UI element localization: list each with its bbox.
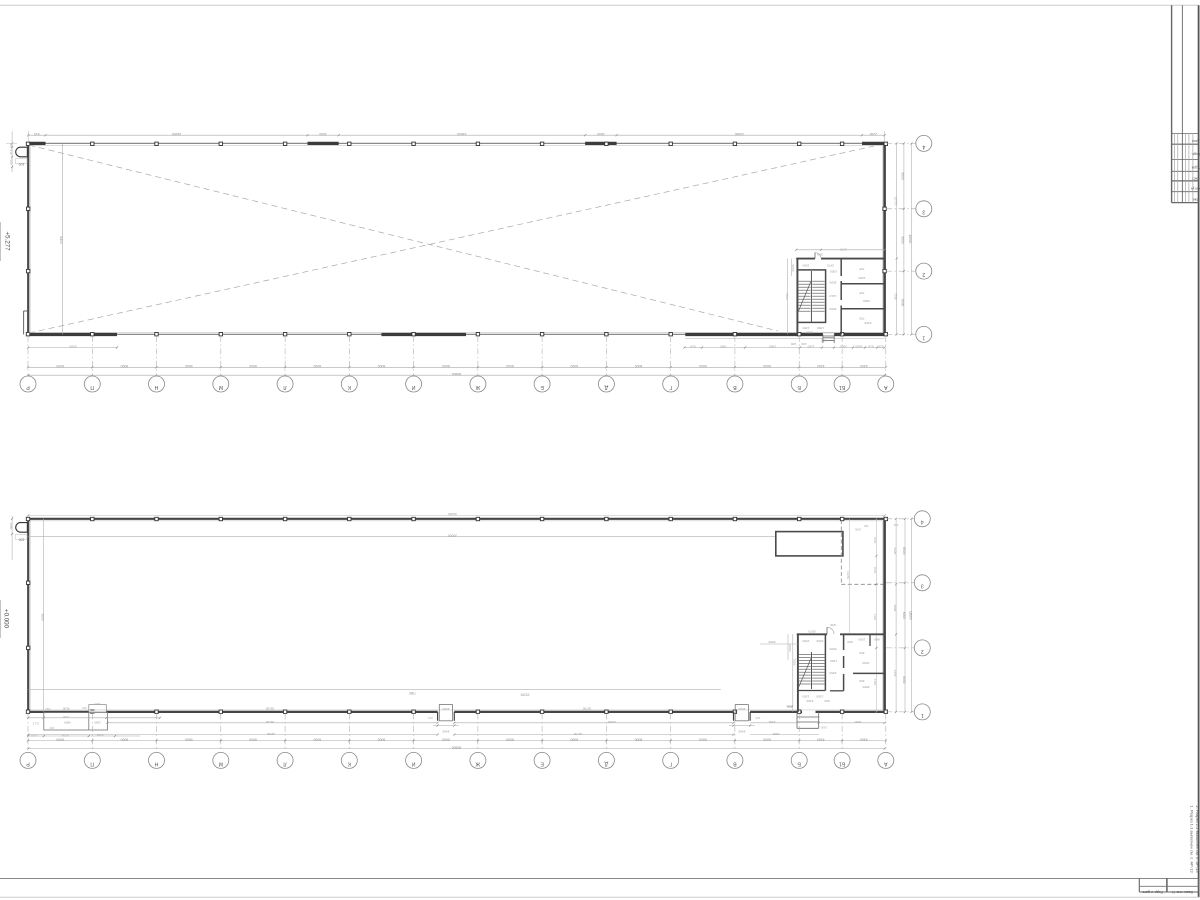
svg-text:В: В — [733, 760, 737, 766]
svg-text:1150: 1150 — [807, 345, 814, 349]
svg-text:100: 100 — [755, 716, 760, 720]
svg-text:3050: 3050 — [862, 685, 869, 689]
svg-text:8570: 8570 — [808, 630, 815, 634]
svg-text:Г: Г — [669, 760, 672, 766]
svg-text:Д: Д — [604, 760, 608, 766]
svg-text:П: П — [90, 384, 94, 390]
svg-text:7270: 7270 — [893, 670, 897, 677]
svg-text:2500: 2500 — [788, 645, 792, 652]
svg-text:Дата: Дата — [1192, 139, 1200, 143]
svg-text:830: 830 — [893, 523, 898, 527]
svg-text:5900: 5900 — [772, 732, 779, 736]
svg-text:10770: 10770 — [894, 197, 898, 206]
svg-text:7500: 7500 — [785, 293, 789, 300]
svg-text:1500: 1500 — [9, 523, 13, 530]
svg-text:1000: 1000 — [94, 702, 101, 706]
svg-text:8570: 8570 — [840, 248, 847, 252]
svg-text:1000: 1000 — [830, 270, 837, 274]
svg-text:И: И — [411, 384, 415, 390]
svg-text:24540: 24540 — [735, 132, 744, 136]
svg-text:910: 910 — [878, 345, 883, 349]
svg-text:100: 100 — [801, 342, 806, 346]
svg-text:Ж: Ж — [475, 760, 480, 766]
svg-text:360: 360 — [9, 143, 13, 148]
svg-text:5000: 5000 — [829, 647, 836, 651]
svg-text:23500: 23500 — [266, 732, 275, 736]
svg-text:5400: 5400 — [59, 236, 63, 244]
svg-text:910: 910 — [690, 345, 695, 349]
svg-text:3000: 3000 — [829, 281, 836, 285]
svg-text:К: К — [348, 384, 351, 390]
svg-text:6000: 6000 — [378, 738, 386, 742]
svg-text:Г: Г — [669, 384, 672, 390]
svg-text:Н: Н — [154, 384, 158, 390]
svg-text:А: А — [884, 760, 888, 766]
svg-text:4000: 4000 — [738, 707, 745, 711]
svg-text:Р: Р — [26, 384, 30, 390]
svg-text:2450: 2450 — [806, 699, 813, 703]
svg-text:К: К — [348, 760, 351, 766]
svg-text:6000: 6000 — [56, 364, 64, 368]
svg-text:1410: 1410 — [829, 294, 836, 298]
svg-text:6000: 6000 — [442, 364, 450, 368]
svg-text:4000: 4000 — [64, 721, 71, 725]
svg-text:2000: 2000 — [840, 345, 847, 349]
svg-text:1500: 1500 — [802, 639, 809, 643]
svg-text:4600: 4600 — [893, 605, 897, 612]
svg-text:900: 900 — [830, 623, 835, 627]
svg-text:6000: 6000 — [121, 364, 129, 368]
svg-text:6120: 6120 — [893, 548, 897, 555]
svg-text:150: 150 — [864, 524, 869, 528]
svg-text:7500: 7500 — [793, 659, 797, 666]
svg-text:6000: 6000 — [313, 738, 321, 742]
svg-text:Е: Е — [540, 760, 544, 766]
svg-text:6000: 6000 — [902, 547, 906, 554]
svg-text:1: 1 — [921, 712, 924, 718]
svg-text:1500: 1500 — [862, 661, 869, 665]
svg-text:8300: 8300 — [69, 345, 76, 349]
svg-text:6000: 6000 — [901, 173, 905, 180]
svg-text:7230: 7230 — [894, 293, 898, 300]
svg-text:910: 910 — [34, 132, 40, 136]
svg-text:М: М — [219, 760, 223, 766]
svg-text:80600: 80600 — [452, 372, 462, 376]
svg-text:2450: 2450 — [806, 331, 813, 335]
svg-text:2. Разрез 2-2 выполнен см. л.: 2. Разрез 2-2 выполнен см. л. АР-13 — [1195, 805, 1200, 873]
svg-text:1350: 1350 — [817, 326, 824, 330]
svg-text:18000: 18000 — [908, 611, 912, 620]
svg-text:2900: 2900 — [873, 567, 877, 574]
svg-text:1. Разрез 1-1 выполнен см. л.: 1. Разрез 1-1 выполнен см. л. АР-13 — [1190, 805, 1195, 873]
svg-text:6000: 6000 — [185, 364, 193, 368]
svg-text:4300: 4300 — [817, 364, 825, 368]
svg-text:6000: 6000 — [635, 738, 643, 742]
svg-text:6000: 6000 — [185, 738, 193, 742]
svg-text:1200: 1200 — [858, 276, 865, 280]
svg-text:100: 100 — [49, 726, 54, 730]
svg-text:300: 300 — [859, 651, 864, 655]
svg-text:1350: 1350 — [816, 695, 823, 699]
svg-text:3: 3 — [922, 209, 925, 215]
svg-text:6000: 6000 — [902, 676, 906, 683]
svg-text:4300: 4300 — [860, 738, 868, 742]
svg-text:1000: 1000 — [94, 721, 101, 725]
svg-text:2000: 2000 — [855, 345, 862, 349]
svg-text:6000: 6000 — [570, 364, 578, 368]
svg-text:М: М — [219, 384, 223, 390]
svg-text:6000: 6000 — [506, 738, 514, 742]
svg-text:1200: 1200 — [830, 659, 837, 663]
svg-text:Б1: Б1 — [839, 760, 845, 766]
svg-text:6000: 6000 — [506, 364, 514, 368]
svg-text:100: 100 — [428, 716, 433, 720]
svg-text:1500: 1500 — [816, 639, 823, 643]
svg-text:6000: 6000 — [901, 236, 905, 243]
svg-text:2250: 2250 — [869, 132, 877, 136]
svg-text:24700: 24700 — [573, 732, 582, 736]
svg-text:700: 700 — [859, 317, 864, 321]
svg-text:6000: 6000 — [442, 738, 450, 742]
svg-text:N док.: N док. — [1191, 166, 1200, 170]
svg-text:6000: 6000 — [249, 364, 257, 368]
svg-text:6000: 6000 — [378, 364, 386, 368]
svg-text:5950: 5950 — [768, 640, 775, 644]
svg-text:340: 340 — [45, 707, 50, 711]
svg-text:1300: 1300 — [802, 695, 809, 699]
svg-text:В: В — [733, 384, 737, 390]
svg-text:4000: 4000 — [786, 704, 793, 708]
svg-text:6000: 6000 — [901, 299, 905, 306]
svg-text:6000: 6000 — [121, 738, 129, 742]
svg-text:2350: 2350 — [829, 671, 836, 675]
svg-text:1001: 1001 — [30, 734, 37, 738]
svg-text:6000: 6000 — [902, 612, 906, 619]
svg-text:3000: 3000 — [854, 720, 861, 724]
svg-text:2000: 2000 — [863, 299, 870, 303]
svg-text:+0.000: +0.000 — [3, 609, 10, 629]
svg-text:6000: 6000 — [763, 364, 771, 368]
svg-text:Б1: Б1 — [839, 384, 845, 390]
svg-text:9600: 9600 — [40, 613, 44, 620]
svg-text:600: 600 — [847, 640, 852, 644]
svg-text:Лист: Лист — [1192, 176, 1200, 180]
svg-text:26200: 26200 — [172, 132, 181, 136]
svg-text:25300: 25300 — [520, 693, 529, 697]
svg-text:25130: 25130 — [265, 707, 274, 711]
svg-text:Е: Е — [540, 384, 544, 390]
svg-text:900: 900 — [824, 699, 829, 703]
svg-text:25730: 25730 — [582, 707, 591, 711]
svg-text:3: 3 — [921, 583, 924, 589]
svg-text:100: 100 — [82, 706, 87, 710]
svg-text:3000: 3000 — [597, 132, 605, 136]
svg-text:6000: 6000 — [570, 738, 578, 742]
svg-text:7980: 7980 — [409, 691, 416, 695]
svg-text:4300: 4300 — [817, 738, 825, 742]
svg-text:21900: 21900 — [607, 720, 616, 724]
svg-text:2: 2 — [922, 271, 925, 277]
svg-text:4: 4 — [921, 519, 924, 525]
svg-text:Б: Б — [797, 384, 801, 390]
svg-text:Подп. и дата: Подп. и дата — [1142, 890, 1163, 894]
svg-text:7500: 7500 — [873, 537, 877, 544]
svg-text:900: 900 — [821, 339, 826, 343]
svg-text:700: 700 — [859, 291, 864, 295]
svg-text:П: П — [90, 760, 94, 766]
svg-text:4300: 4300 — [768, 720, 775, 724]
svg-text:300: 300 — [859, 679, 864, 683]
svg-text:4300: 4300 — [873, 679, 877, 686]
svg-text:2470: 2470 — [827, 264, 834, 268]
svg-text:2400: 2400 — [864, 321, 871, 325]
svg-text:6000: 6000 — [313, 364, 321, 368]
svg-text:6000: 6000 — [699, 738, 707, 742]
svg-text:900: 900 — [817, 253, 822, 257]
svg-text:1000: 1000 — [858, 638, 865, 642]
svg-text:1950: 1950 — [854, 528, 861, 532]
svg-text:10250: 10250 — [846, 571, 850, 579]
svg-text:910: 910 — [9, 150, 13, 155]
svg-text:1560: 1560 — [802, 264, 809, 268]
svg-text:18000: 18000 — [908, 234, 912, 243]
svg-text:Н: Н — [154, 760, 158, 766]
svg-text:1350: 1350 — [802, 326, 809, 330]
svg-text:3400: 3400 — [738, 730, 745, 734]
svg-text:25130: 25130 — [265, 720, 274, 724]
svg-text:1900: 1900 — [820, 725, 827, 729]
svg-text:5400: 5400 — [96, 733, 103, 737]
svg-text:2: 2 — [921, 648, 924, 654]
svg-text:1100: 1100 — [63, 715, 70, 719]
svg-text:4300: 4300 — [873, 614, 877, 621]
svg-text:3000: 3000 — [829, 307, 836, 311]
svg-text:660: 660 — [874, 638, 879, 642]
svg-text:+5.277: +5.277 — [4, 231, 11, 251]
svg-text:111,3: 111,3 — [32, 721, 39, 725]
svg-text:80600: 80600 — [452, 746, 462, 750]
svg-text:Взам. инв. N: Взам. инв. N — [1172, 890, 1193, 894]
svg-text:1450: 1450 — [769, 345, 776, 349]
svg-text:Д: Д — [604, 384, 608, 390]
svg-text:6000: 6000 — [763, 738, 771, 742]
svg-text:960: 960 — [9, 159, 13, 164]
svg-text:Б: Б — [797, 760, 801, 766]
svg-text:3000: 3000 — [319, 132, 327, 136]
svg-text:И: И — [411, 760, 415, 766]
svg-text:910: 910 — [868, 345, 873, 349]
svg-text:6000: 6000 — [635, 364, 643, 368]
svg-text:4100: 4100 — [63, 706, 70, 710]
svg-text:1: 1 — [922, 334, 925, 340]
svg-text:4000: 4000 — [442, 707, 449, 711]
svg-text:Л: Л — [283, 384, 286, 390]
svg-text:Изм.: Изм. — [1192, 197, 1199, 201]
svg-text:4300: 4300 — [860, 364, 868, 368]
svg-text:100: 100 — [791, 342, 796, 346]
svg-text:Л: Л — [283, 760, 286, 766]
svg-text:30000: 30000 — [448, 534, 457, 538]
svg-text:4: 4 — [922, 143, 925, 149]
svg-text:4150: 4150 — [61, 734, 68, 738]
svg-text:3400: 3400 — [442, 730, 449, 734]
svg-text:Подп.: Подп. — [1191, 152, 1200, 156]
svg-text:Кол.уч: Кол.уч — [1190, 187, 1200, 191]
svg-text:700: 700 — [859, 267, 864, 271]
svg-text:24640: 24640 — [457, 132, 466, 136]
svg-text:6000: 6000 — [56, 738, 64, 742]
svg-text:7500: 7500 — [720, 345, 727, 349]
svg-text:6000: 6000 — [699, 364, 707, 368]
svg-text:6000: 6000 — [249, 738, 257, 742]
svg-text:Р: Р — [26, 760, 30, 766]
svg-text:Ж: Ж — [475, 384, 480, 390]
svg-text:А: А — [884, 384, 888, 390]
